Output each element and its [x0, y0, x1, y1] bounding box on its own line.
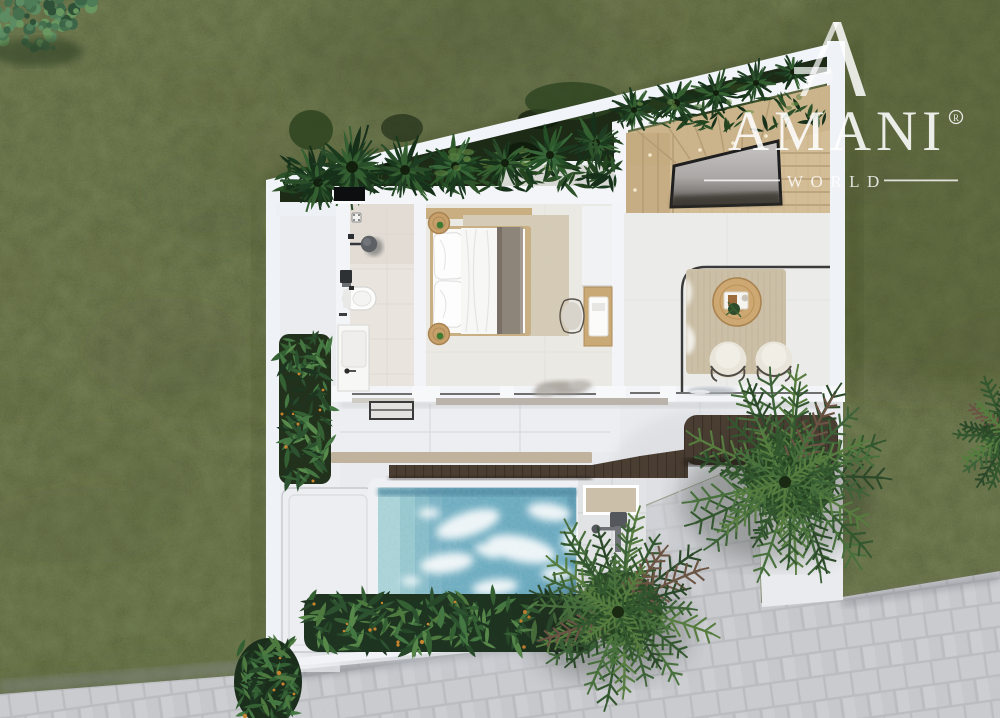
svg-text:WORLD: WORLD: [787, 172, 887, 191]
svg-text:R: R: [953, 113, 959, 123]
svg-text:AMANI: AMANI: [728, 100, 946, 163]
